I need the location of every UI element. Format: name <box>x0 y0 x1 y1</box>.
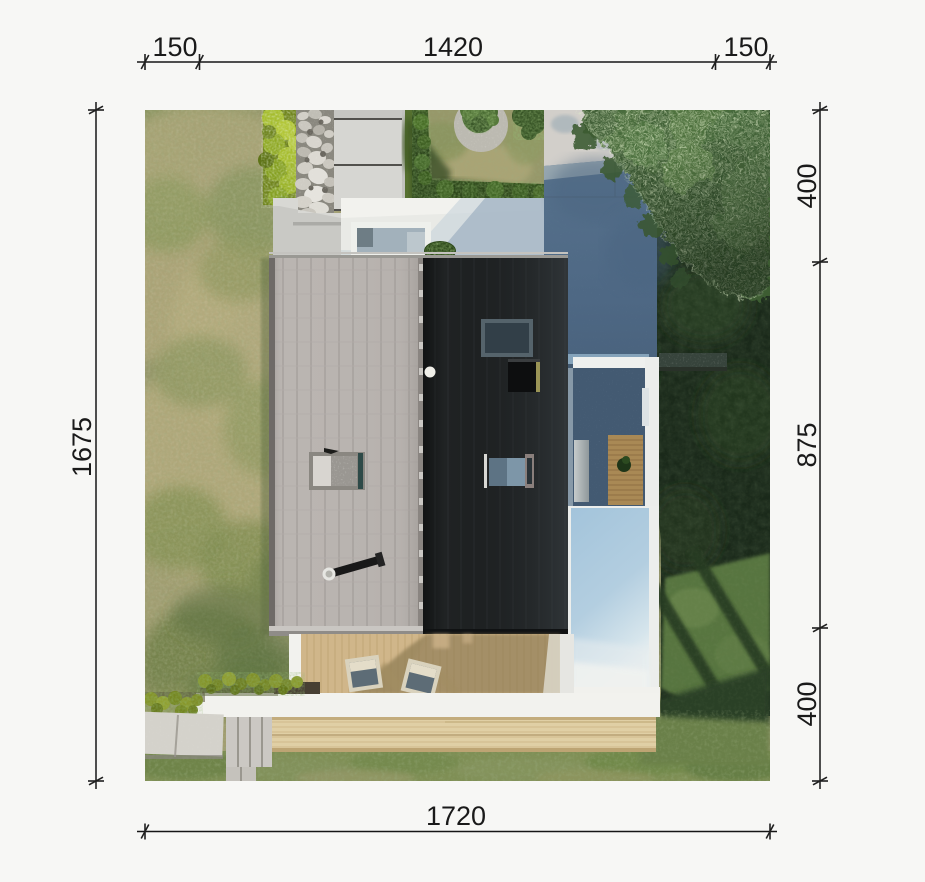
svg-text:1720: 1720 <box>426 801 486 831</box>
svg-text:1675: 1675 <box>67 417 97 477</box>
svg-text:400: 400 <box>792 163 822 208</box>
svg-text:400: 400 <box>792 681 822 726</box>
svg-text:1420: 1420 <box>423 32 483 62</box>
svg-text:150: 150 <box>152 32 197 62</box>
svg-text:150: 150 <box>723 32 768 62</box>
svg-text:875: 875 <box>792 422 822 467</box>
